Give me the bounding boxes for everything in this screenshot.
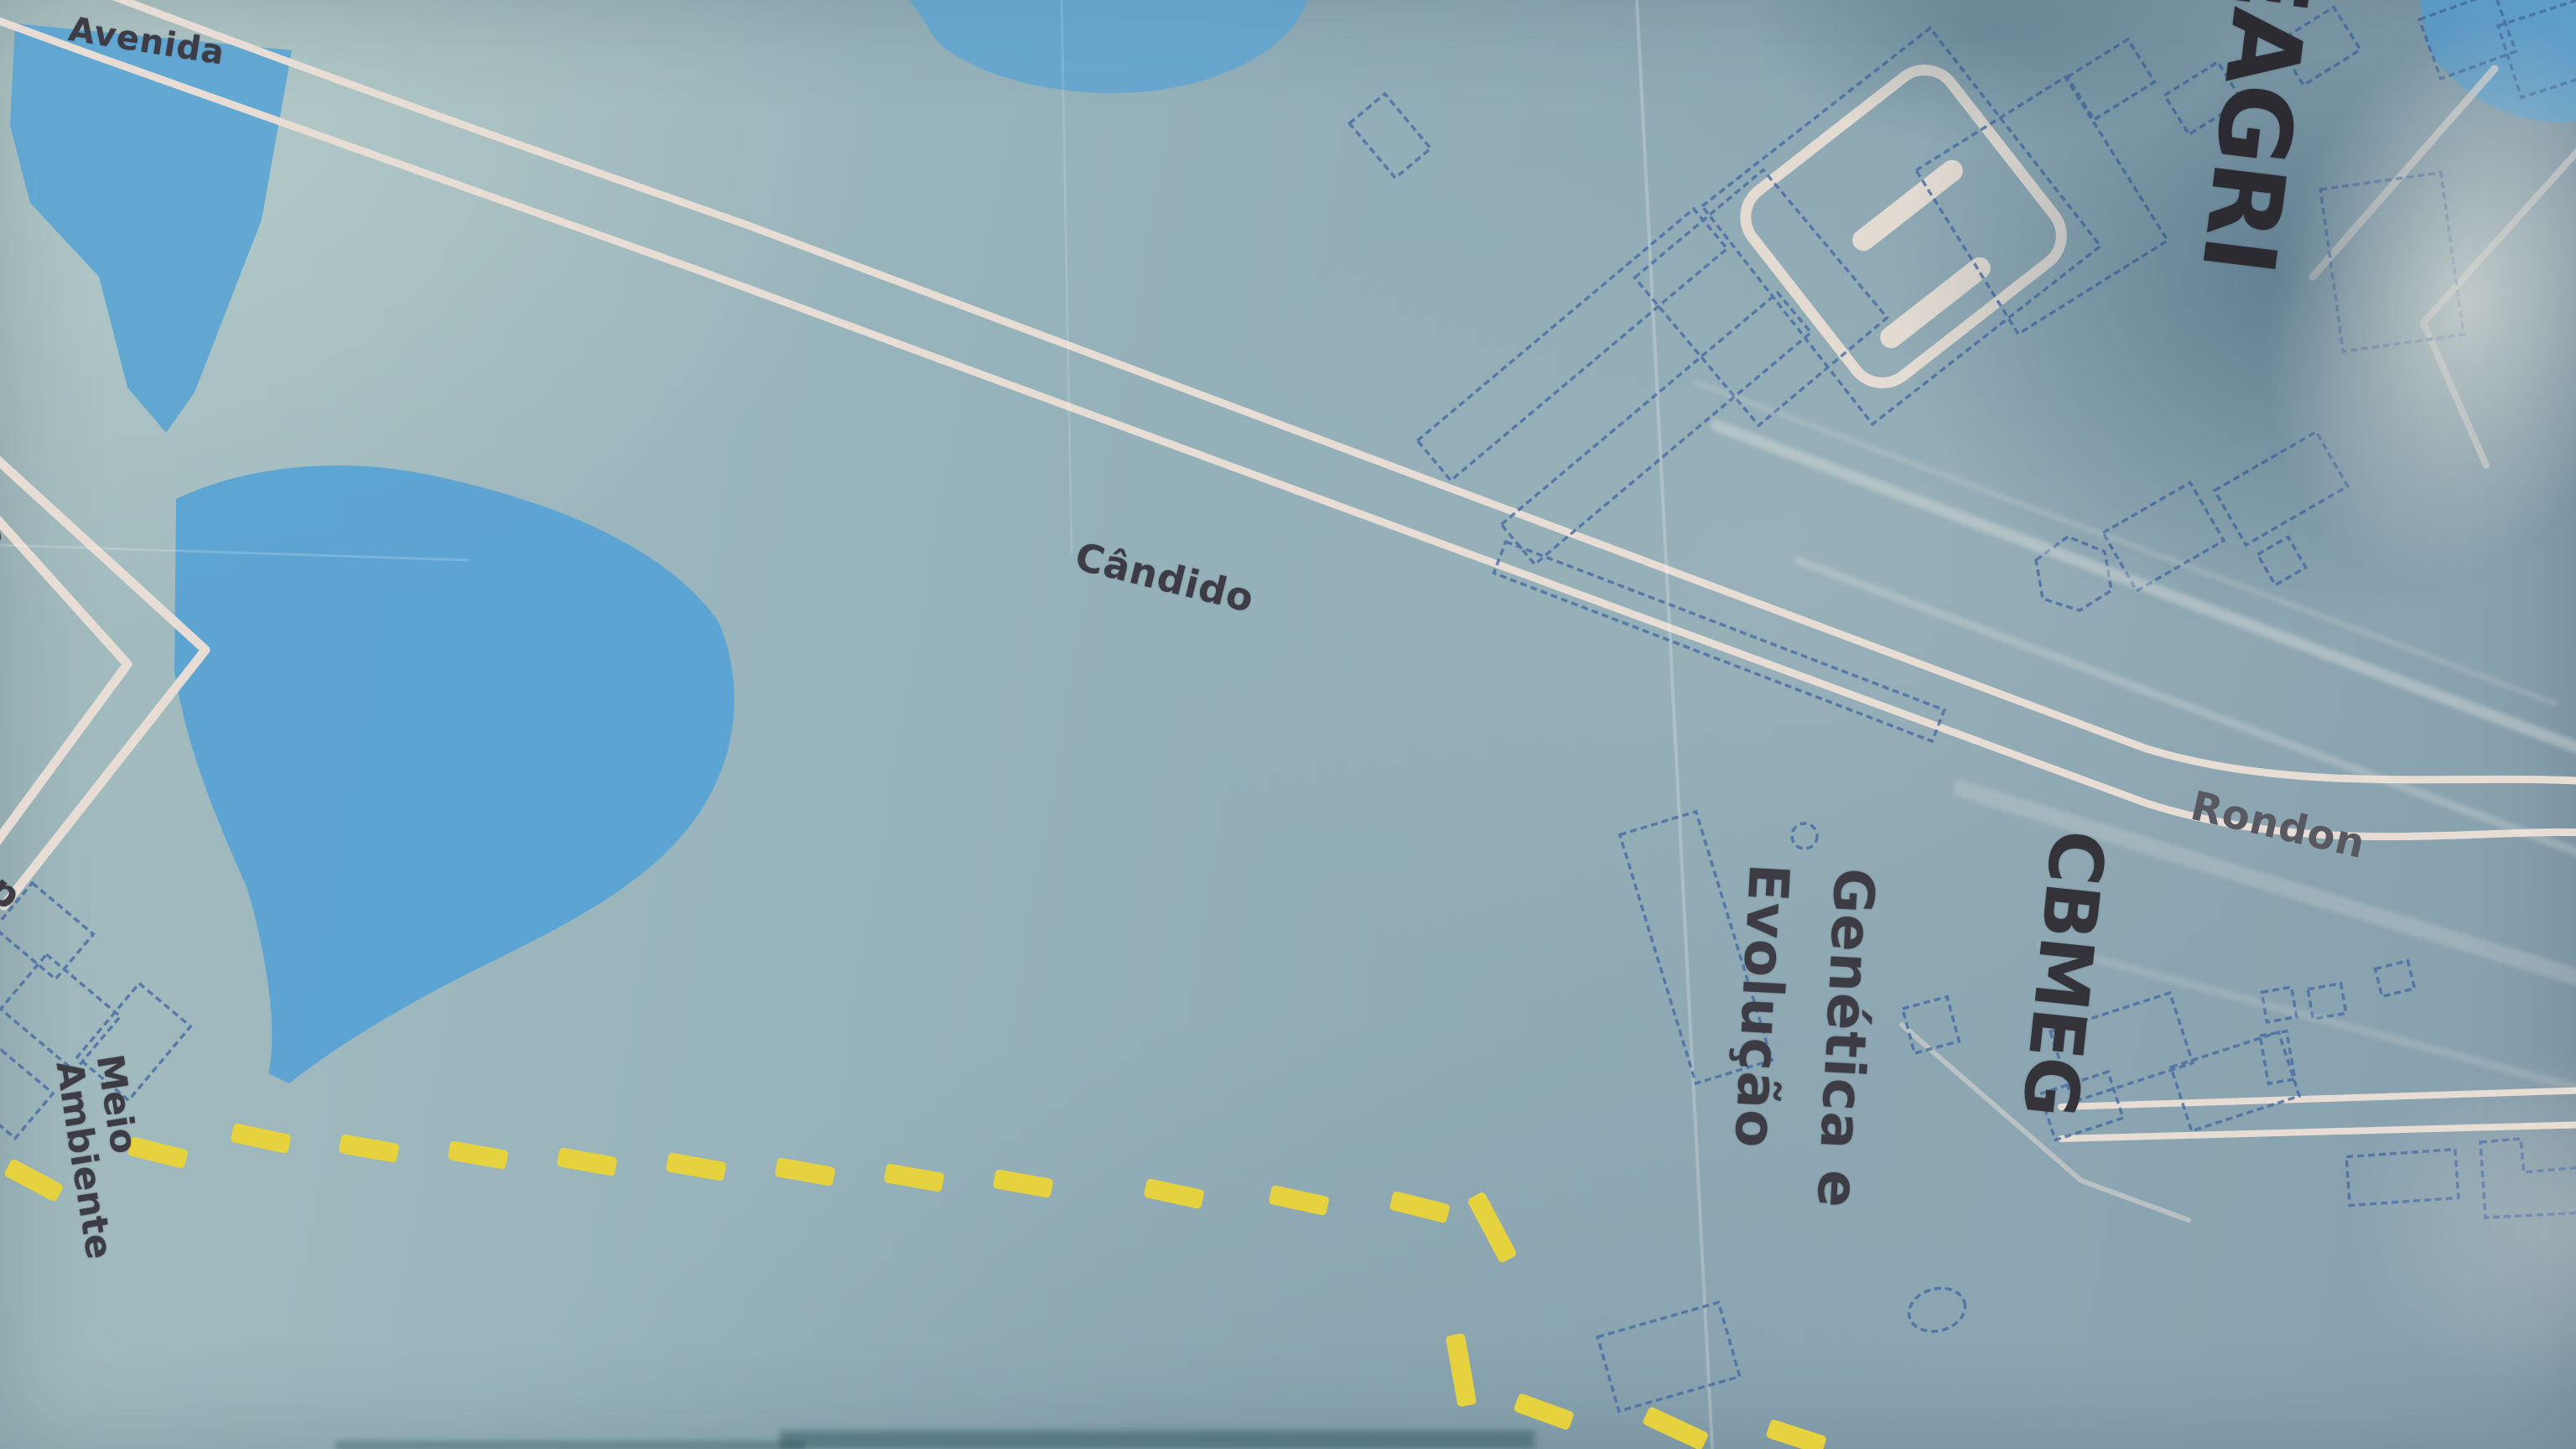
yellow-dashed-trail [3, 1123, 1827, 1449]
building-label-genetica-evolucao: Genética e Evolução [1707, 861, 1897, 1210]
campus-map-photo: Avenida Cândido Rondon EAGRI CBMEG Genét… [0, 0, 2576, 1449]
water-top-right-corner [2419, 0, 2576, 122]
road-courtyard-loop [1732, 56, 2075, 396]
road-left-chevron-outer [0, 454, 205, 906]
road-bottom-right-lower [2061, 1124, 2576, 1139]
lake-top-left [10, 23, 292, 433]
courtyard-bar-1 [1848, 156, 1967, 256]
road-top-right-a [2313, 69, 2495, 277]
road-bottom-right-upper [2061, 1090, 2576, 1107]
genetica-line1: Genética e [1794, 866, 1897, 1211]
road-top-right-b [2423, 141, 2576, 465]
water-top-center [910, 0, 1308, 93]
lake-large-left [174, 465, 735, 1083]
